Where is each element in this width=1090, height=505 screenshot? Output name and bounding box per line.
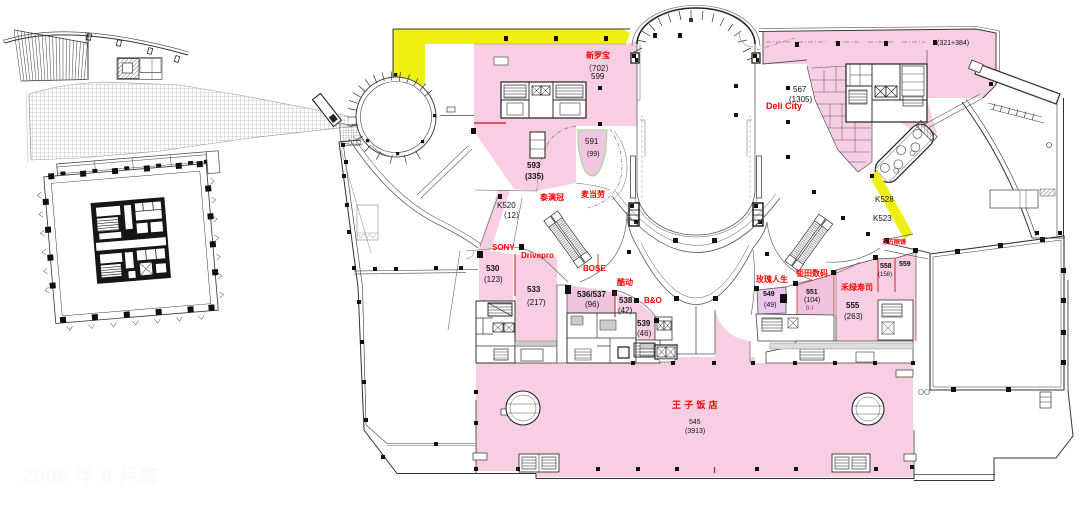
svg-text:王子饭店: 王子饭店 bbox=[672, 399, 721, 410]
svg-text:(42): (42) bbox=[618, 306, 633, 315]
svg-text:(104): (104) bbox=[804, 297, 820, 304]
svg-text:K528: K528 bbox=[875, 195, 894, 204]
svg-text:539: 539 bbox=[637, 319, 651, 328]
svg-text:591: 591 bbox=[585, 137, 599, 146]
svg-text:530: 530 bbox=[486, 264, 500, 273]
svg-text:555: 555 bbox=[846, 301, 860, 310]
svg-text:(263): (263) bbox=[844, 312, 863, 321]
svg-text:559: 559 bbox=[899, 261, 911, 268]
svg-text:593: 593 bbox=[527, 161, 541, 170]
svg-text:SONY: SONY bbox=[492, 243, 515, 252]
svg-text:东方眼镜: 东方眼镜 bbox=[882, 238, 906, 246]
svg-text:(96): (96) bbox=[585, 300, 600, 309]
svg-text:536/537: 536/537 bbox=[577, 290, 606, 299]
svg-text:538: 538 bbox=[619, 296, 633, 305]
svg-text:(217): (217) bbox=[527, 298, 546, 307]
svg-text:(158): (158) bbox=[878, 272, 892, 278]
svg-text:533: 533 bbox=[527, 285, 541, 294]
svg-text:(49): (49) bbox=[764, 302, 776, 309]
svg-text:Drivepro: Drivepro bbox=[521, 251, 554, 260]
svg-text:BOSE: BOSE bbox=[583, 264, 606, 273]
svg-text:B&O: B&O bbox=[644, 296, 662, 305]
svg-text:(99): (99) bbox=[587, 151, 599, 158]
svg-text:551: 551 bbox=[806, 289, 818, 296]
svg-text:2006 年 8 月底: 2006 年 8 月底 bbox=[22, 464, 160, 488]
svg-text:(1305): (1305) bbox=[789, 95, 812, 104]
svg-text:(46): (46) bbox=[637, 329, 652, 338]
svg-text:K520: K520 bbox=[497, 201, 516, 210]
svg-text:麦当劳: 麦当劳 bbox=[581, 189, 605, 199]
svg-text:0·I: 0·I bbox=[806, 306, 813, 312]
svg-text:K523: K523 bbox=[873, 214, 892, 223]
svg-text:（12）: （12） bbox=[499, 211, 524, 220]
svg-text:(123): (123) bbox=[484, 275, 503, 284]
svg-text:新罗宝: 新罗宝 bbox=[586, 50, 610, 60]
svg-text:泰满冠: 泰满冠 bbox=[539, 192, 564, 202]
svg-text:549: 549 bbox=[763, 291, 775, 298]
svg-text:558: 558 bbox=[880, 263, 892, 270]
svg-text:酷动: 酷动 bbox=[617, 277, 633, 287]
svg-text:玫瑰人生: 玫瑰人生 bbox=[756, 274, 788, 284]
svg-text:567: 567 bbox=[793, 85, 807, 94]
svg-text:(3913): (3913) bbox=[685, 428, 705, 435]
svg-text:545: 545 bbox=[689, 419, 701, 426]
svg-text:钜田数码: 钜田数码 bbox=[796, 268, 828, 278]
svg-text:(321+384): (321+384) bbox=[937, 40, 969, 47]
svg-text:599: 599 bbox=[591, 72, 605, 81]
svg-text:(335): (335) bbox=[525, 172, 544, 181]
svg-text:禾绿寿司: 禾绿寿司 bbox=[840, 282, 873, 292]
